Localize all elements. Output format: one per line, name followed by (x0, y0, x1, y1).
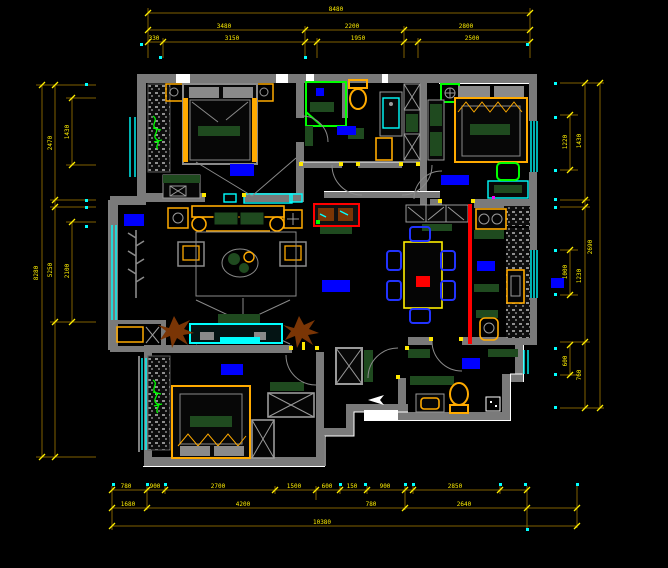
blanket (198, 126, 240, 136)
dim-label: 8480 (329, 6, 344, 13)
cabinet-dot (316, 220, 320, 224)
rug (320, 227, 352, 234)
bed-rail (252, 98, 257, 162)
floor-plan-drawing[interactable]: 8480 3480 2200 2800 330 3150 1950 2500 7… (0, 0, 668, 568)
dim-label: 600 (322, 483, 333, 490)
dining-chair (387, 251, 401, 270)
dim-label: 1230 (576, 268, 583, 283)
dining-chair (387, 281, 401, 300)
window-seat-alcove (117, 327, 159, 343)
marker-dot (492, 196, 495, 199)
faucet (389, 102, 393, 106)
counter-top (410, 376, 454, 385)
plant-stand (128, 230, 144, 298)
dim-label: 2800 (459, 23, 474, 30)
dim-label: 2640 (457, 501, 472, 508)
shelf (305, 126, 313, 146)
toilet-bowl (450, 383, 468, 405)
dim-label: 150 (347, 483, 358, 490)
room-label-block (477, 261, 495, 271)
desk-chair (497, 163, 519, 180)
dimension-chain-bottom: 780 900 2700 1500 600 150 900 2850 1680 … (109, 483, 580, 530)
footboard-panel (180, 446, 210, 456)
sofa-arm (192, 217, 206, 231)
lamp (260, 88, 268, 96)
washer-dial (495, 405, 497, 407)
footboard-panel (214, 446, 244, 456)
window-box (224, 194, 236, 202)
dim-label: 10380 (313, 519, 331, 526)
dining-chair (410, 309, 430, 323)
toilet-tank (450, 405, 468, 413)
dim-label: 1680 (121, 501, 136, 508)
dim-label: 780 (366, 501, 377, 508)
counter-top (474, 284, 499, 292)
room-label-block (441, 175, 469, 185)
flower (287, 213, 299, 225)
dim-label: 2100 (64, 263, 71, 278)
dim-label: 4200 (236, 501, 251, 508)
closet-fill (406, 114, 418, 132)
side-table (168, 208, 188, 228)
counter-top (476, 310, 498, 318)
window-kitchen-right (531, 250, 537, 298)
headboard-panel (458, 86, 490, 98)
room-bath1 (302, 80, 367, 146)
blanket (190, 416, 232, 427)
counter-top (474, 230, 504, 239)
counter-top (488, 349, 518, 357)
dim-label: 780 (121, 483, 132, 490)
dim-label: 1430 (64, 124, 71, 139)
dim-label: 2850 (448, 483, 463, 490)
cabinet-shelf (220, 337, 260, 342)
shelf (270, 382, 304, 391)
room-bedroom3 (148, 355, 316, 458)
dim-label: 5250 (47, 262, 54, 277)
alcove-stool (146, 327, 159, 343)
fridge (507, 270, 524, 303)
dim-label: 1220 (562, 134, 569, 149)
window-bedroom2-right (531, 121, 537, 172)
plant-leaves (228, 253, 240, 265)
dimension-chain-left: 1430 2470 8280 5250 2100 (33, 82, 96, 460)
bed-rail (183, 98, 188, 162)
dim-label: 1430 (576, 133, 583, 148)
room-label-block (230, 164, 254, 176)
dim-label: 1950 (351, 35, 366, 42)
tv (218, 314, 260, 323)
lamp (173, 213, 183, 223)
title-block (364, 410, 398, 421)
room-bedroom1 (148, 84, 296, 198)
dim-label: 1500 (287, 483, 302, 490)
dim-label: 600 (562, 355, 569, 366)
stool-seat (484, 323, 494, 333)
table-plant-pot (244, 252, 254, 262)
cabinet (376, 138, 392, 160)
door-swing (432, 341, 462, 371)
dim-label: 2200 (345, 23, 360, 30)
armchair-seat (285, 246, 301, 260)
wardrobe-fill (430, 104, 442, 126)
cabinet-box (200, 332, 214, 340)
dim-label: 2690 (587, 239, 594, 254)
window-bath2-right (524, 350, 528, 374)
plant-leaves (239, 263, 249, 273)
shower-shelf (310, 102, 334, 112)
room-label-block (322, 280, 350, 292)
toilet-bowl (350, 89, 366, 109)
room-label-block (551, 278, 564, 288)
dim-label: 2700 (211, 483, 226, 490)
door-swing (332, 165, 362, 195)
wardrobe-hatch (148, 356, 170, 450)
counter-top (408, 349, 430, 358)
dim-label: 3150 (225, 35, 240, 42)
washer-dial (490, 401, 492, 403)
sofa-arm (270, 217, 284, 231)
dim-label: 900 (380, 483, 391, 490)
dim-label: 330 (149, 35, 160, 42)
counter-edge-line (468, 204, 472, 344)
headboard-panel (223, 87, 253, 98)
dim-label: 2500 (465, 35, 480, 42)
dresser-top (163, 175, 200, 183)
door-swing (286, 355, 316, 385)
nightstand (256, 84, 273, 101)
counter-hatch (504, 206, 530, 226)
room-dining (387, 227, 455, 323)
room-living (124, 206, 350, 348)
blanket (470, 124, 510, 135)
cad-viewport[interactable]: 8480 3480 2200 2800 330 3150 1950 2500 7… (0, 0, 668, 568)
washing-machine (486, 397, 500, 411)
north-arrow (368, 395, 384, 405)
armchair-seat (183, 246, 199, 260)
dining-chair (441, 251, 455, 270)
sofa-cushion (240, 212, 264, 225)
room-bedroom2 (414, 84, 528, 199)
sofa-cushion (214, 212, 238, 225)
dim-label: 1000 (562, 264, 569, 279)
desk-top (494, 185, 522, 193)
dim-label: 900 (150, 483, 161, 490)
dim-label: 760 (576, 369, 583, 380)
shower-head (316, 88, 324, 96)
dim-label: 2470 (47, 135, 54, 150)
bay-window-top-left (130, 117, 135, 177)
room-label-block (124, 214, 144, 226)
room-label-block (462, 358, 480, 369)
lamp (170, 88, 178, 96)
wardrobe-fill (430, 132, 442, 156)
stool (480, 318, 498, 340)
dim-label: 3480 (217, 23, 232, 30)
table-centerpiece (416, 276, 430, 287)
door-swing (402, 165, 432, 195)
headboard-panel (494, 86, 524, 98)
room-label-block (221, 364, 243, 375)
dimension-chain-right: 1220 1430 1000 1230 600 760 2690 (560, 80, 604, 411)
dining-chair (441, 281, 455, 300)
room-label-block (337, 126, 356, 135)
room-washroom (376, 84, 420, 160)
alcove-table (117, 327, 143, 342)
dimension-chain-top: 8480 3480 2200 2800 330 3150 1950 2500 (145, 6, 533, 58)
headboard-panel (189, 87, 219, 98)
dim-label: 8280 (33, 265, 40, 280)
dining-table (404, 242, 442, 308)
